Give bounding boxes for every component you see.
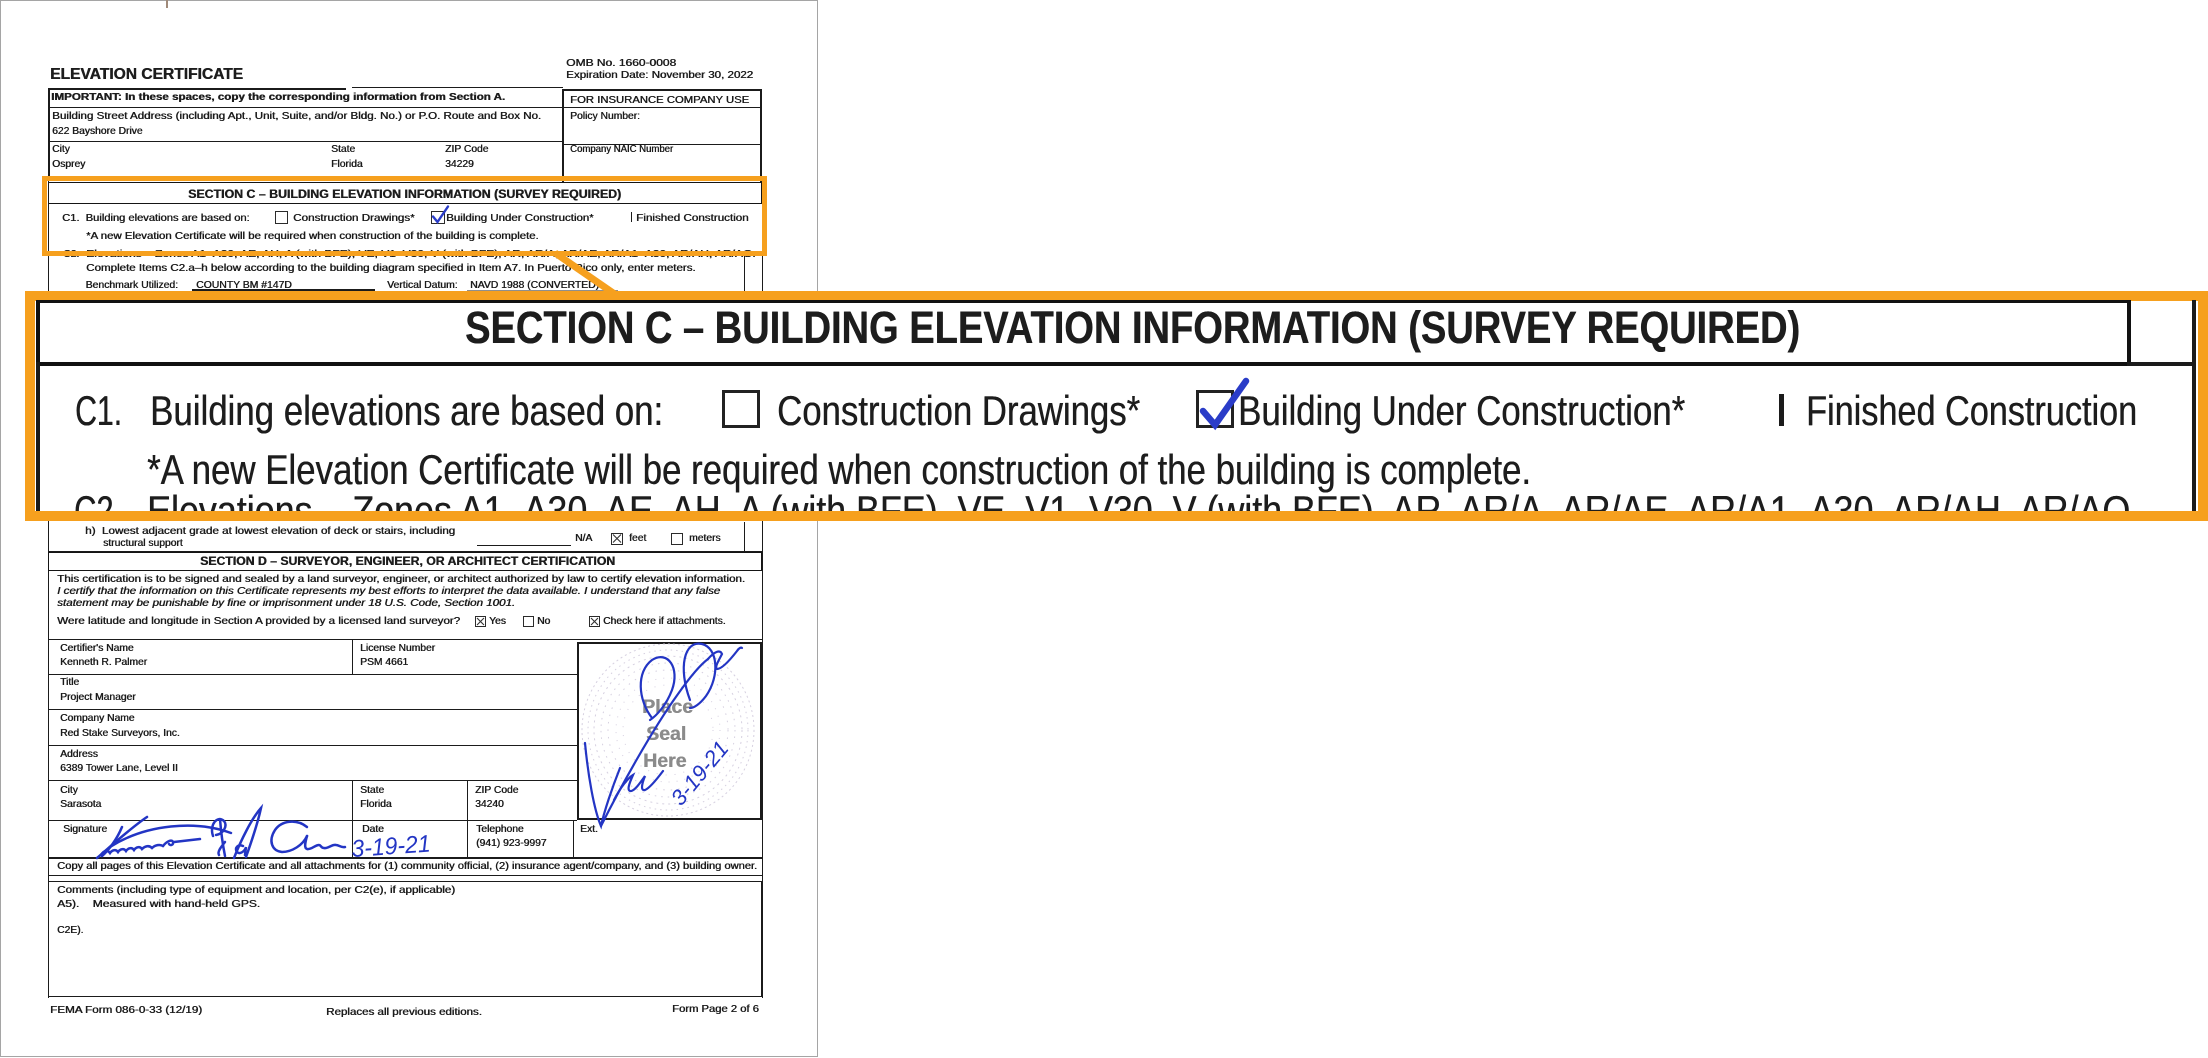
svg-text:3-19-21: 3-19-21 bbox=[350, 830, 431, 862]
svg-text:3-19-21: 3-19-21 bbox=[666, 736, 734, 810]
